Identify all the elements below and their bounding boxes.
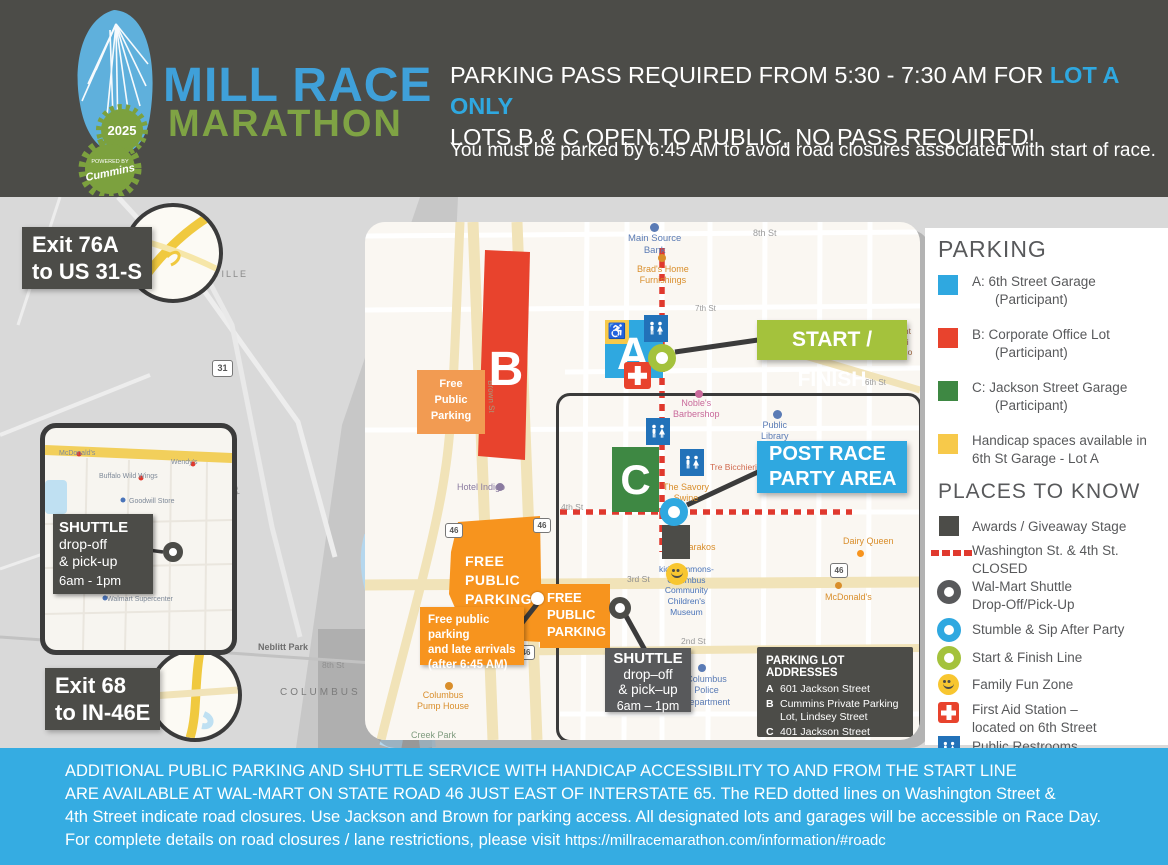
awards-stage-marker [662, 525, 690, 559]
late-arrivals-dot [531, 592, 544, 605]
creek-park-label: Creek Park [411, 730, 456, 740]
pump-house-label: Columbus Pump House [417, 690, 469, 713]
walmart-shuttle-inset: McDonald's Wendy's Buffalo Wild Wings Go… [40, 423, 237, 655]
restroom-icon [646, 418, 670, 445]
free-parking-east-box: FREE PUBLIC PARKING [540, 584, 610, 648]
exit-68-label: Exit 68 to IN-46E [45, 668, 160, 730]
parking-legend-title: PARKING [938, 236, 1047, 263]
address-value: Cummins Private Parking Lot, Lindsey Str… [780, 698, 898, 724]
third-st-label: 3rd St [627, 574, 650, 585]
nobles-poi-dot [695, 390, 703, 398]
route-46-shield: 46 [830, 563, 848, 578]
footer-line4-prefix: For complete details on road closures / … [65, 831, 565, 849]
walmart-shuttle-legend: Wal-Mart Shuttle Drop-Off/Pick-Up [972, 578, 1075, 614]
exit-76a-label: Exit 76A to US 31-S [22, 227, 152, 289]
free-parking-big-label: FREE PUBLIC PARKING [465, 552, 532, 609]
shuttle-stop-marker [609, 597, 631, 619]
dairy-queen-label: Dairy Queen [843, 536, 894, 547]
legend-panel: PARKING A: 6th Street Garage (Participan… [925, 228, 1168, 745]
start-finish-legend: Start & Finish Line [972, 649, 1082, 667]
main-source-bank-label: Main Source Bank [628, 233, 681, 257]
lot-a-legend: A: 6th Street Garage (Participant) [972, 273, 1096, 309]
places-legend-title: PLACES TO KNOW [938, 480, 1140, 504]
marathon-logo: 2025 POWERED BY Cummins [62, 6, 172, 196]
mcdonalds-label: McDonald's [825, 592, 872, 603]
bank-poi-dot [650, 223, 659, 232]
brads-label: Brad's Home Furnishings [637, 264, 689, 287]
restroom-swatch [938, 736, 960, 748]
neblitt-park-label: Neblitt Park [258, 642, 308, 652]
footer-url-link[interactable]: https://millracemarathon.com/information… [565, 832, 886, 849]
after-party-marker [660, 498, 688, 526]
walmart-shuttle-swatch [937, 580, 961, 604]
shuttle-lines: drop–off & pick–up [605, 667, 691, 697]
tre-bicchieri-label: Tre Bicchieri [710, 462, 757, 473]
nobles-label: Noble's Barbershop [673, 398, 720, 421]
footer-line1: ADDITIONAL PUBLIC PARKING AND SHUTTLE SE… [65, 760, 1101, 783]
first-aid-icon [624, 362, 651, 389]
lot-c-swatch [938, 381, 958, 401]
footer-line2: ARE AVAILABLE AT WAL-MART ON STATE ROAD … [65, 783, 1101, 806]
walmart-shuttle-callout: SHUTTLE drop-off & pick-up 6am - 1pm [53, 514, 153, 594]
shuttle-title: SHUTTLE [605, 650, 691, 667]
route-46-shield: 46 [445, 523, 463, 538]
flyer-page: 2025 POWERED BY Cummins MILL RACE MARATH… [0, 0, 1168, 865]
header-line1-prefix: PARKING PASS REQUIRED FROM 5:30 - 7:30 A… [450, 62, 1050, 88]
after-party-legend: Stumble & Sip After Party [972, 621, 1124, 639]
start-finish-callout: START / FINISH [757, 320, 907, 360]
header-banner: 2025 POWERED BY Cummins MILL RACE MARATH… [0, 0, 1168, 197]
address-key: B [766, 698, 780, 724]
family-fun-legend: Family Fun Zone [972, 676, 1073, 694]
map-section: ORSVILLE 31 N Indianapolis Rd Neblitt Pa… [0, 197, 1168, 748]
fourth-st-label: 4th St [561, 502, 583, 513]
awards-stage-swatch [939, 516, 959, 536]
shuttle-title: SHUTTLE [59, 519, 147, 536]
awards-legend: Awards / Giveaway Stage [972, 518, 1126, 536]
address-key: A [766, 683, 780, 696]
address-value: 401 Jackson Street [780, 726, 870, 739]
after-party-swatch [937, 618, 961, 642]
family-fun-zone-icon [666, 563, 688, 585]
post-race-callout: POST RACE PARTY AREA [757, 441, 907, 493]
shuttle-callout: SHUTTLE drop–off & pick–up 6am – 1pm [605, 648, 691, 712]
eighth-st-label: 8th St [753, 228, 777, 239]
road-closed-legend: Washington St. & 4th St. CLOSED [972, 542, 1119, 578]
walmart-shuttle-stop-marker [163, 542, 183, 562]
handicap-legend: Handicap spaces available in 6th St Gara… [972, 432, 1147, 468]
eighth-st-bg-label: 8th St [322, 660, 344, 670]
restroom-icon [644, 315, 668, 342]
start-finish-swatch [937, 646, 961, 670]
route-46-shield: 46 [533, 518, 551, 533]
columbus-label: COLUMBUS [280, 687, 361, 698]
addresses-title: PARKING LOT ADDRESSES [766, 655, 904, 679]
late-arrivals-callout: Free public parking and late arrivals (a… [420, 607, 524, 665]
logo-title-marathon: MARATHON [168, 103, 403, 146]
second-st-label: 2nd St [681, 636, 706, 647]
first-aid-legend: First Aid Station – located on 6th Stree… [972, 701, 1097, 737]
address-row: A 601 Jackson Street [766, 683, 904, 696]
lot-b-swatch [938, 328, 958, 348]
restrooms-legend: Public Restrooms [972, 738, 1078, 748]
handicap-swatch [938, 434, 958, 454]
sixth-st-label: 6th St [865, 378, 886, 388]
dairy-poi-dot [857, 550, 864, 557]
footer-banner: ADDITIONAL PUBLIC PARKING AND SHUTTLE SE… [0, 748, 1168, 865]
address-row: C 401 Jackson Street [766, 726, 904, 739]
lot-b-letter: B [481, 342, 531, 397]
start-finish-marker [648, 344, 676, 372]
address-value: 601 Jackson Street [780, 683, 870, 696]
address-row: B Cummins Private Parking Lot, Lindsey S… [766, 698, 904, 724]
downtown-map-inset: B Brown St Free Public Parking ♿ A START… [365, 222, 920, 740]
lot-b-legend: B: Corporate Office Lot (Participant) [972, 326, 1110, 362]
mcdonalds-poi-dot [835, 582, 842, 589]
lot-c-legend: C: Jackson Street Garage (Participant) [972, 379, 1127, 415]
address-key: C [766, 726, 780, 739]
exit-68-inset [148, 648, 242, 742]
family-fun-swatch [938, 674, 959, 695]
shuttle-time: 6am – 1pm [605, 699, 691, 713]
seventh-st-label: 7th St [695, 304, 716, 314]
road-closed-swatch [931, 550, 972, 556]
shuttle-lines: drop-off & pick-up [59, 536, 147, 570]
footer-text: ADDITIONAL PUBLIC PARKING AND SHUTTLE SE… [65, 760, 1101, 852]
restroom-icon [680, 449, 704, 476]
shuttle-time: 6am - 1pm [59, 573, 147, 588]
free-parking-small-label: Free Public Parking [417, 370, 485, 434]
pump-poi-dot [445, 682, 453, 690]
first-aid-swatch [938, 702, 959, 723]
library-label: Public Library [761, 420, 789, 443]
lot-c-letter: C [612, 456, 659, 504]
parking-lot-addresses: PARKING LOT ADDRESSES A 601 Jackson Stre… [757, 647, 913, 737]
header-note: You must be parked by 6:45 AM to avoid r… [450, 140, 1160, 162]
lot-a-swatch [938, 275, 958, 295]
footer-line3: 4th Street indicate road closures. Use J… [65, 806, 1101, 829]
logo-year: 2025 [108, 123, 137, 138]
police-poi-dot [698, 664, 706, 672]
footer-line4: For complete details on road closures / … [65, 829, 1101, 852]
library-poi-dot [773, 410, 782, 419]
route-31-shield: 31 [212, 360, 233, 377]
hotel-indigo-label: Hotel Indigo [457, 482, 505, 493]
